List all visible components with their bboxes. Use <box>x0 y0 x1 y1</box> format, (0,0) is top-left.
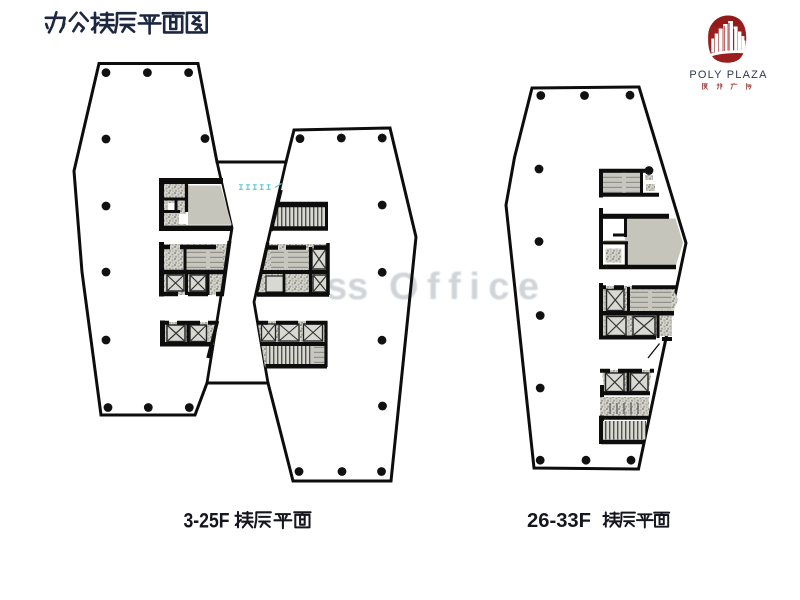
svg-text:POLY PLAZA: POLY PLAZA <box>689 69 767 81</box>
svg-text:26-33F: 26-33F <box>527 510 591 532</box>
svg-text:ss: ss <box>326 266 368 308</box>
svg-text:3-25F: 3-25F <box>184 510 230 533</box>
